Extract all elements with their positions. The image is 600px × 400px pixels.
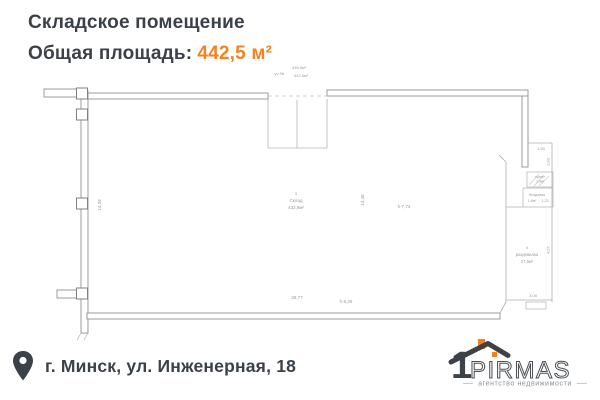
dim-height2: h-6,29 [340, 299, 353, 304]
dim-bottom: 28,77 [291, 295, 303, 300]
location-pin-icon [12, 350, 34, 382]
right-strip-walls [499, 143, 552, 313]
dim-203: 2,03 [546, 157, 551, 166]
room1-area: 432,8м² [288, 205, 304, 210]
dim-height1: h-7,74 [398, 204, 411, 209]
column [77, 88, 88, 99]
dim-mid: 14,48 [360, 194, 365, 206]
room4-name: раздевалка [516, 252, 539, 257]
room2-name: Кладовая [529, 193, 545, 197]
room1-name: Склад [289, 198, 302, 203]
wall-bottom [87, 313, 500, 319]
wall-right-upper [522, 96, 528, 167]
room2-dim: 1,23 [542, 199, 549, 203]
wall-break-mark [77, 333, 88, 340]
wall-top-left-segment [88, 93, 268, 99]
stamp-area1: 439,5м² [292, 65, 307, 70]
room4-area: 27,5м² [521, 259, 534, 264]
column [77, 288, 88, 299]
listing-image: { "colors": { "accent": "#f5811f", "ink"… [0, 0, 600, 400]
strip-door [526, 302, 546, 309]
wall-left-stub [57, 290, 77, 298]
room-storage [523, 188, 553, 207]
stamp-label: уч.№ [275, 71, 285, 76]
vestibule-recess [268, 99, 327, 148]
dim-308: 3,08 [529, 293, 538, 298]
room4-number: 4 [526, 245, 529, 250]
dim-left-wall: 14,39 [97, 199, 102, 211]
wall-top-right-segment [327, 90, 528, 96]
room2-area: 1,8м² [528, 199, 537, 203]
agency-logo: 1 PIRMAS агентство недвижимости [445, 336, 595, 399]
column [77, 198, 88, 209]
footer: г. Минск, ул. Инженерная, 18 [12, 350, 296, 382]
dim-150: 1,50 [537, 146, 546, 151]
column [77, 109, 88, 120]
logo-one: 1 [451, 345, 472, 387]
dim-457: 4,57 [546, 245, 551, 254]
stamp-area2: 442,5м² [294, 73, 309, 78]
room3-name: туалет [535, 175, 545, 179]
room3-area: 1,0м² [536, 180, 544, 184]
logo-tagline: агентство недвижимости [478, 381, 572, 388]
pirmas-logo-icon: 1 PIRMAS агентство недвижимости [445, 336, 595, 394]
room1-number: 1 [295, 191, 298, 196]
address-text: г. Минск, ул. Инженерная, 18 [45, 356, 296, 377]
